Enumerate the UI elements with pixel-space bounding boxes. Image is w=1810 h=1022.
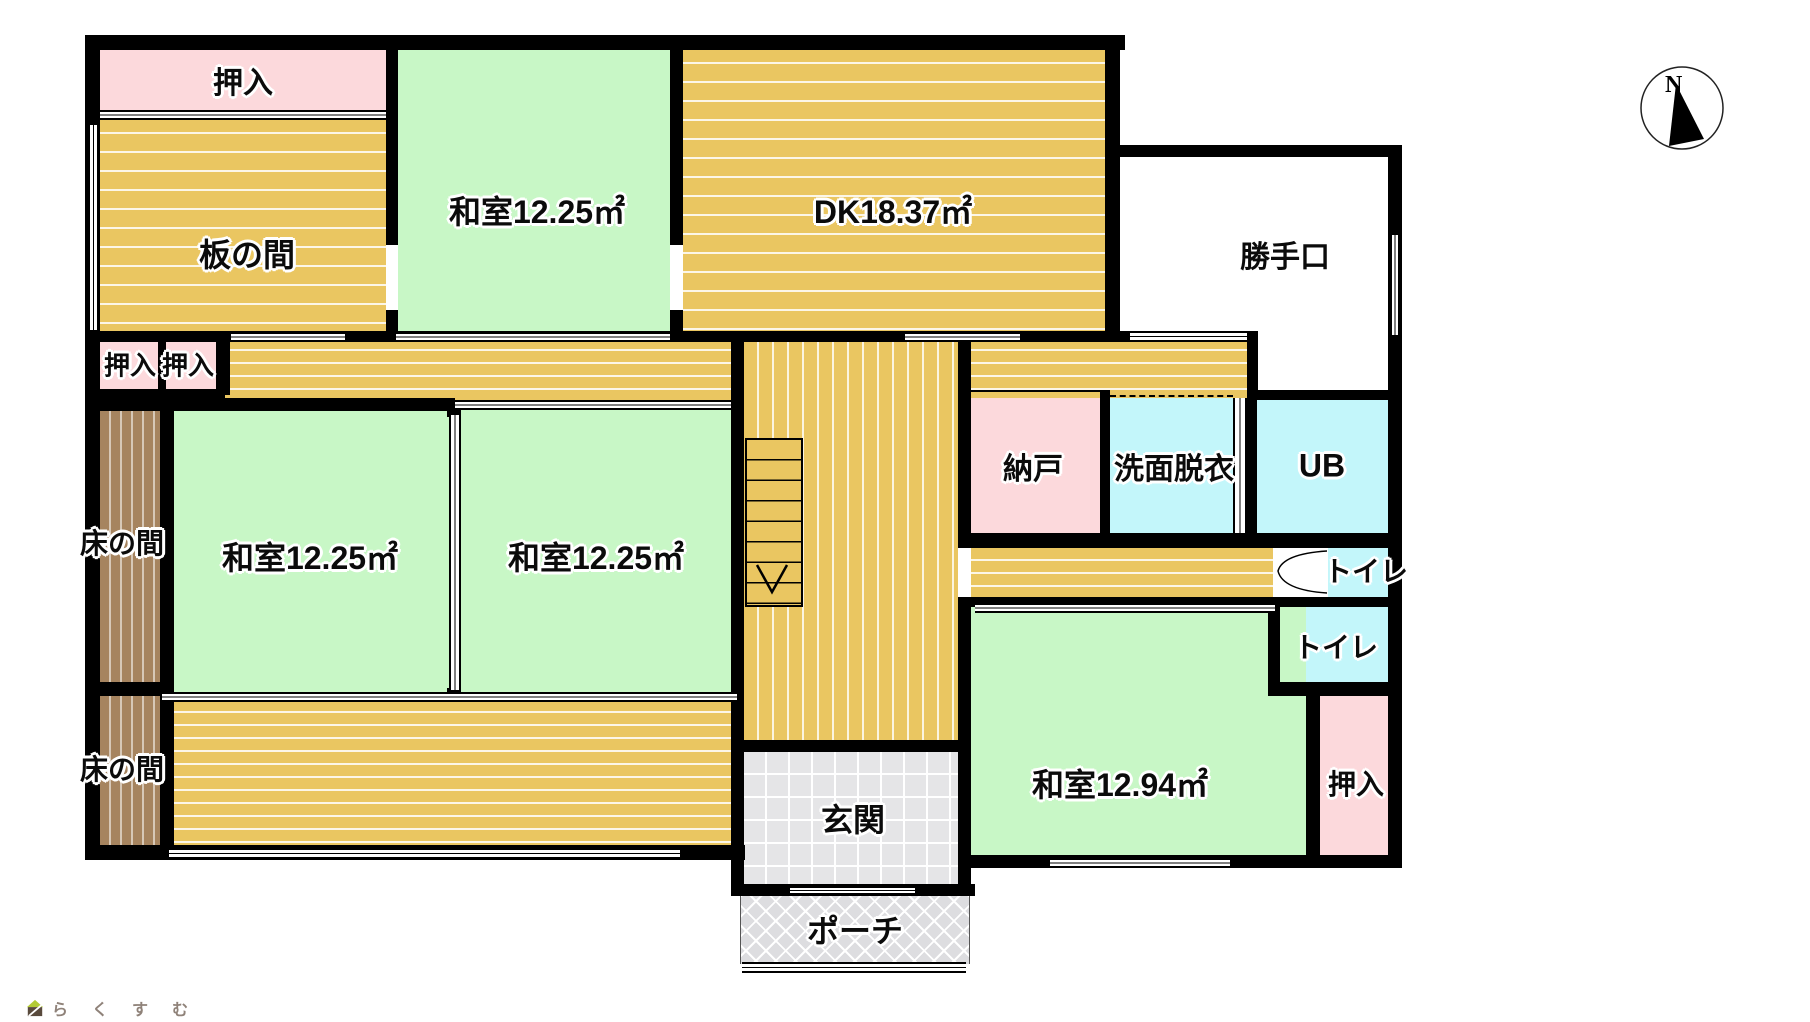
compass-circle: [1641, 67, 1723, 149]
door-washitsu-top-right: [670, 245, 683, 310]
wall-hall-left: [731, 341, 744, 894]
window-corridor-right-top: [1130, 331, 1247, 342]
label-porch: ポーチ: [807, 906, 903, 952]
window-right-wall: [1390, 235, 1400, 335]
label-oshiire-a: 押入: [104, 346, 156, 383]
window-left-wall: [88, 125, 99, 330]
wall-corridor-bottom: [100, 398, 455, 411]
door-washitsu-top-left: [386, 245, 398, 310]
door-senmen-dashed: [1110, 395, 1233, 397]
corridor-upper-left-floor: [225, 338, 735, 401]
logo-text: らくすむ: [52, 996, 212, 1020]
rakusumu-logo: らくすむ: [26, 996, 212, 1020]
sliding-washitsu-mid: [449, 415, 461, 690]
window-washitsu-sw-top: [975, 603, 1275, 613]
wall-toilet-lower-bottom: [1268, 682, 1402, 696]
label-oshiire-top: 押入: [213, 58, 273, 102]
wall-corridor-right-end: [1247, 331, 1258, 391]
door-genkan-entry: [790, 886, 915, 895]
house-logo-icon: [26, 999, 44, 1017]
label-toilet-upper: トイレ: [1324, 550, 1408, 590]
wall-dk-right: [1105, 35, 1120, 338]
wall-oshiire-se-left: [1306, 696, 1320, 856]
wall-hall-right-upper: [958, 331, 971, 548]
window-bottom-right: [1050, 858, 1230, 868]
label-washitsu-mid-left: 和室12.25㎡: [222, 533, 398, 579]
wall-nando-senmen: [1100, 390, 1110, 535]
label-dk: DK18.37㎡: [814, 187, 972, 233]
label-genkan: 玄関: [821, 795, 885, 841]
window-bottom-left: [169, 848, 680, 859]
wall-katteguchi-top: [1105, 145, 1402, 157]
veranda-floor: [162, 700, 737, 845]
window-hall-top: [905, 332, 1020, 342]
label-washitsu-top: 和室12.25㎡: [449, 187, 625, 233]
sliding-corridor-washitsu: [455, 400, 731, 410]
label-itanoma: 板の間: [199, 230, 295, 276]
label-tokonoma-upper: 床の間: [80, 522, 164, 562]
compass-north-label: N: [1665, 72, 1683, 98]
line-nando-top: [967, 390, 1100, 392]
sliding-washitsu-veranda: [162, 692, 737, 702]
room-washitsu-sw-floor: [971, 607, 1306, 855]
sliding-washitsu-top-bottom: [396, 332, 670, 342]
room-itanoma-floor: [100, 115, 386, 331]
wall-senmen-ub: [1247, 390, 1257, 535]
rail-oshiire-top: [100, 110, 386, 120]
wall-toilet-lower-left: [1268, 607, 1280, 682]
corridor-lower-floor: [971, 548, 1273, 597]
porch-step-edge: [742, 962, 966, 973]
wall-genkan-top: [731, 740, 971, 752]
label-ub: UB: [1299, 448, 1345, 485]
wall-ub-top: [1247, 390, 1402, 400]
floor-plan: 押入 板の間 和室12.25㎡ DK18.37㎡ 勝手口 押入 押入 床の間 和…: [0, 0, 1810, 1022]
label-tokonoma-lower: 床の間: [80, 748, 164, 788]
label-oshiire-se: 押入: [1328, 763, 1384, 803]
wall-waterrow-bottom: [958, 533, 1402, 548]
label-oshiire-b: 押入: [162, 346, 214, 383]
wall-oshiire-pair-right: [216, 335, 230, 395]
door-senmen-ub-gap: [1233, 398, 1247, 533]
label-nando: 納戸: [1003, 444, 1063, 488]
label-katteguchi: 勝手口: [1240, 232, 1330, 276]
wall-top-outer: [85, 35, 1125, 50]
toilet-upper-vestibule: [1273, 548, 1328, 597]
label-washitsu-sw: 和室12.94㎡: [1032, 760, 1208, 806]
compass: N: [1641, 67, 1723, 149]
label-washitsu-mid-right: 和室12.25㎡: [508, 533, 684, 579]
label-toilet-lower: トイレ: [1294, 626, 1378, 666]
compass-needle-icon: [1669, 84, 1704, 146]
label-senmen: 洗面脱衣: [1114, 444, 1234, 488]
staircase: [745, 438, 803, 607]
window-itanoma-bottom: [231, 332, 345, 342]
